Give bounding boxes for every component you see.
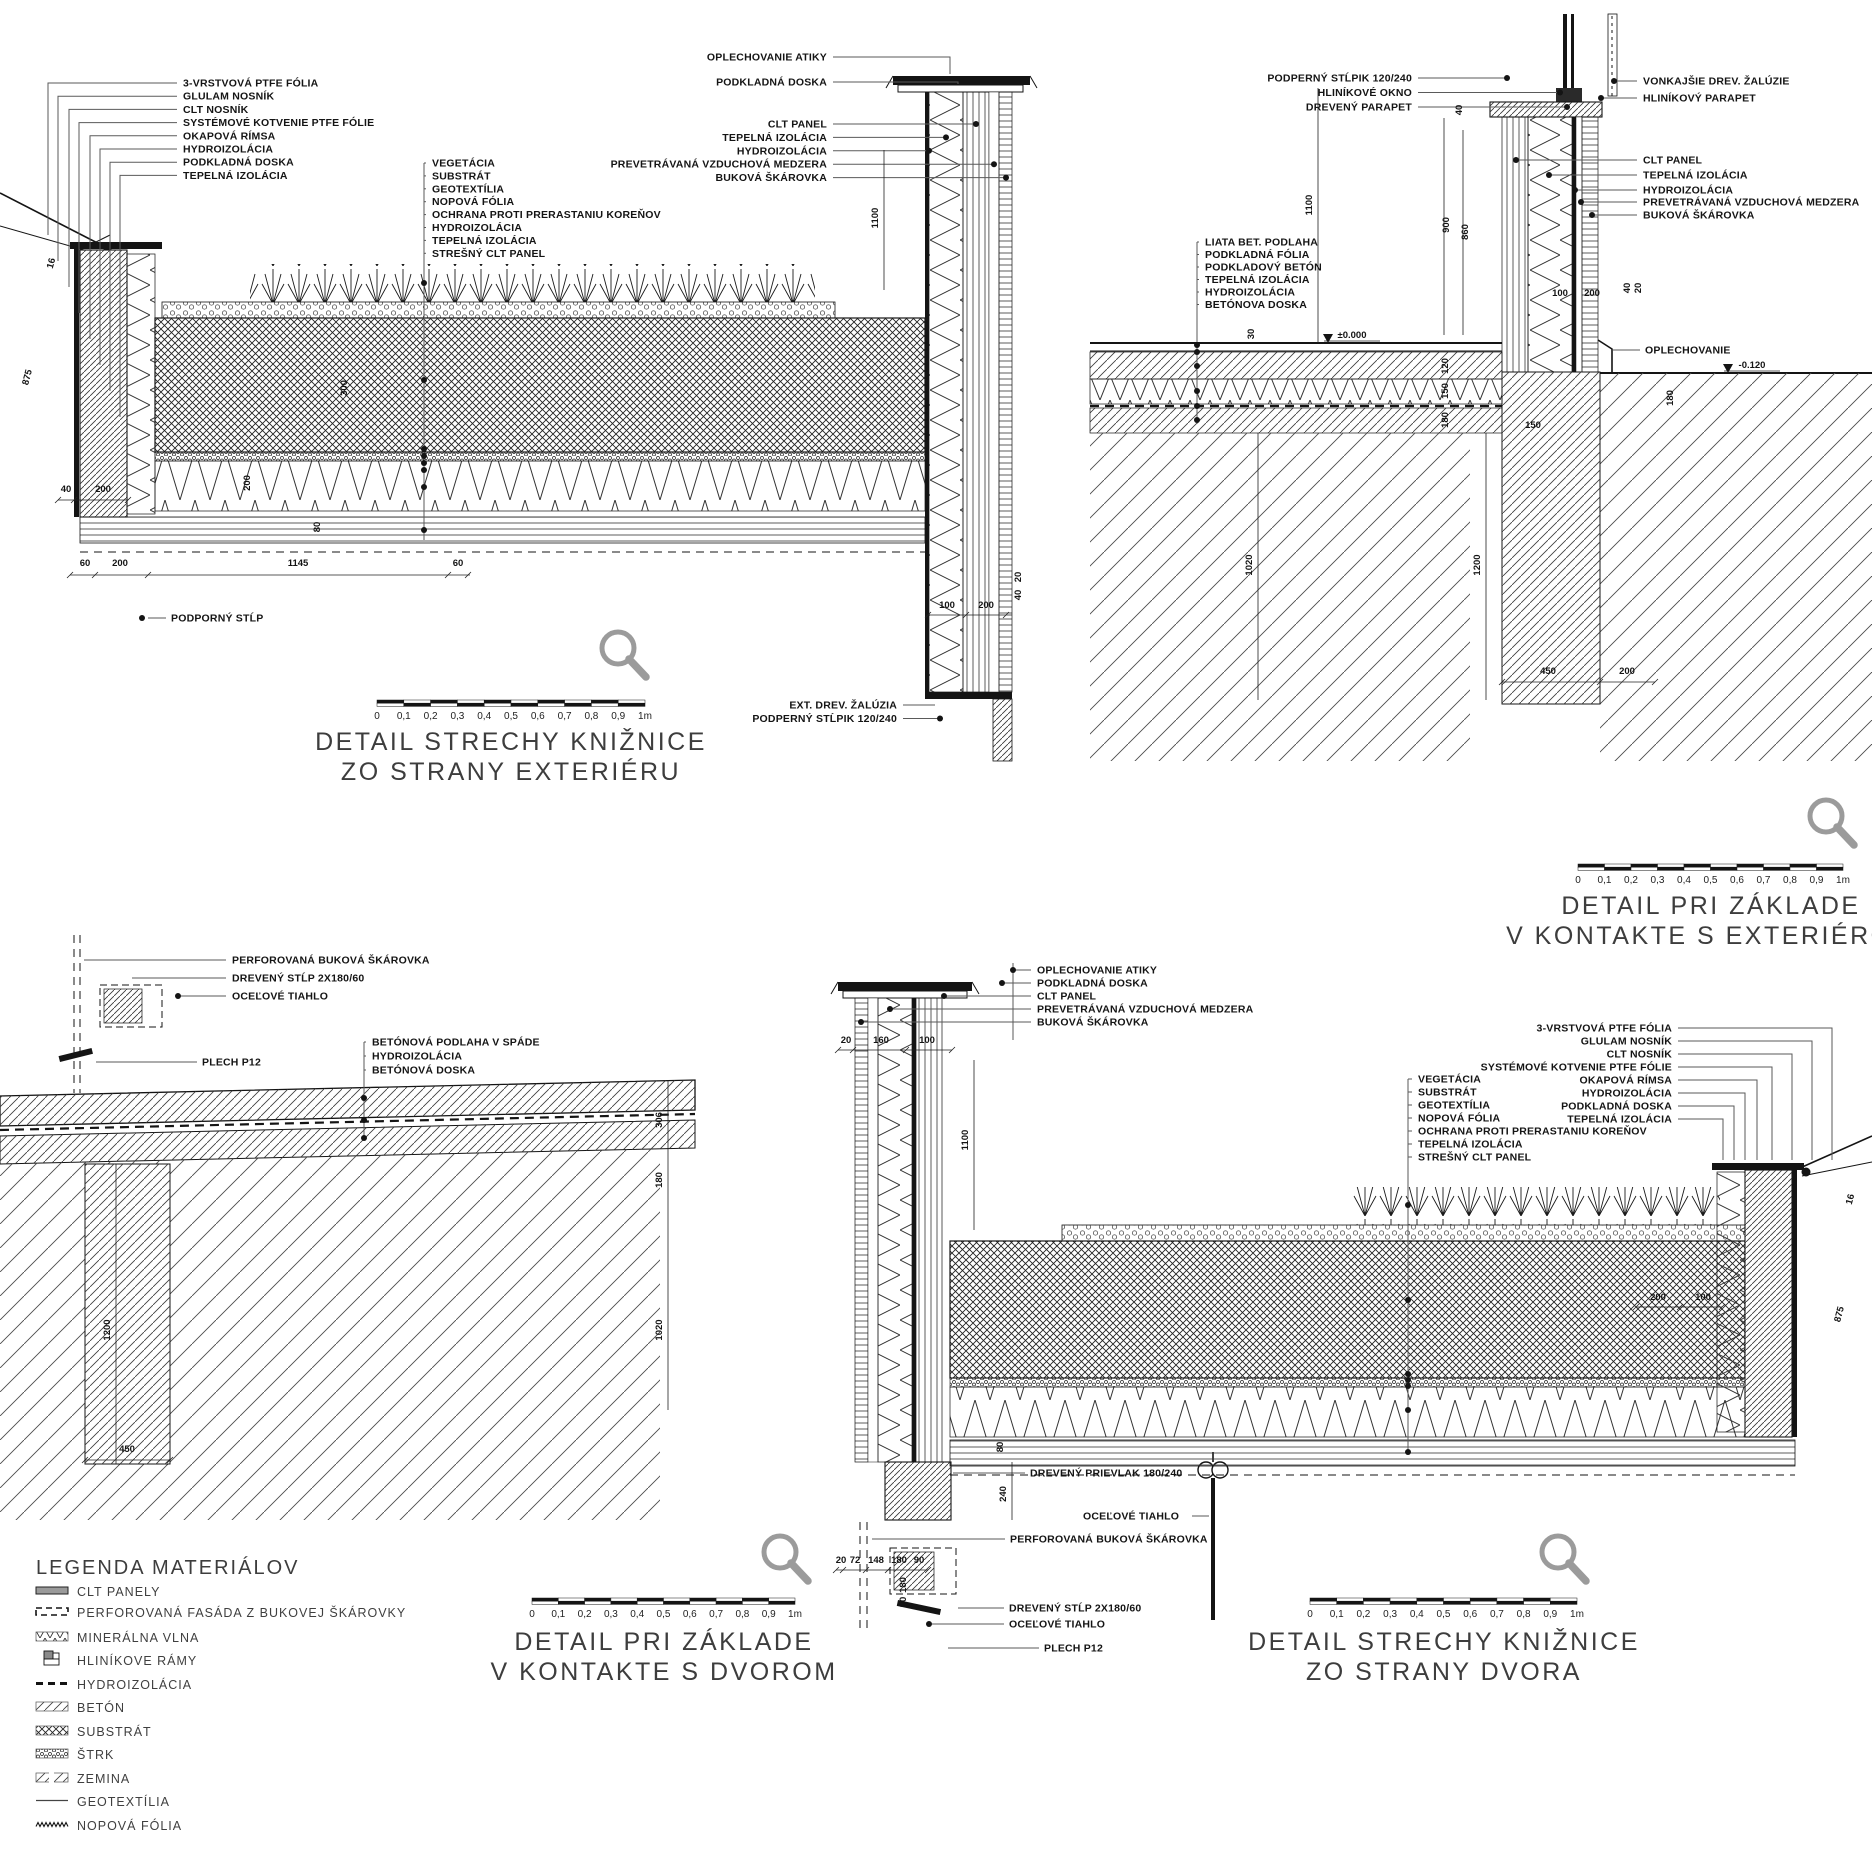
br-middle-label: VEGETÁCIA [1418,1073,1481,1086]
br-tie2-label-dot [926,1621,932,1627]
dim-text: 180 [891,1555,907,1566]
scale-tick-label: 0,6 [1730,875,1744,886]
scale-bar-segment [1658,864,1685,867]
dim-text: 450 [1540,666,1556,677]
scale-tick-label: 1m [1836,875,1850,886]
tl-left-label: HYDROIZOLÁCIA [183,143,273,156]
tl-middle-label: HYDROIZOLÁCIA [432,221,522,234]
dim-text: 60 [453,558,464,569]
scale-tick-label: 0,2 [424,711,438,722]
scale-bar-segment [690,1598,716,1601]
legend-swatch-beton [36,1702,68,1711]
tl-clt-layer [80,517,925,543]
dim-text: 240 [998,1486,1009,1502]
scale-bar-segment [1310,1598,1337,1601]
tl-middle-label: TEPELNÁ IZOLÁCIA [432,234,537,247]
scale-tick-label: 0,2 [1356,1609,1370,1620]
scale-tick-label: 0,6 [1463,1609,1477,1620]
scale-bar-segment [690,1601,716,1604]
scale-bar-segment [742,1598,768,1601]
scale-bar-segment [457,700,484,703]
br-middle-dot [1405,1297,1411,1303]
tr-level-zero: ±0.000 [1338,330,1367,341]
br-wall-hydro [912,998,916,1462]
dim-text: 860 [1460,224,1471,240]
tl-middle-label: NOPOVÁ FÓLIA [432,195,515,208]
tr-flashing-label: OPLECHOVANIE [1645,345,1731,357]
scale-bar-segment [565,700,592,703]
scale-tick-label: 0,6 [683,1609,697,1620]
dim-text: 100 [939,600,955,611]
tr-title-line1: DETAIL PRI ZÁKLADE [1561,891,1860,920]
dim-text: 1100 [1304,195,1315,216]
tl-bottom-right-label: EXT. DREV. ŽALÚZIA [789,699,897,712]
br-top-label: PODKLADNÁ DOSKA [1037,977,1148,990]
scale-bar-segment [1578,867,1605,870]
scale-bar-segment [1711,864,1738,867]
tr-floor-dot [1194,342,1200,348]
legend-item-label: MINERÁLNA VLNA [77,1630,199,1645]
legend-item-label: NOPOVÁ FÓLIA [77,1818,182,1833]
scale-bar-segment [769,1598,795,1601]
br-middle-dot [1405,1377,1411,1383]
tl-middle-dot [421,453,427,459]
tl-middle-dot [421,484,427,490]
legend-swatch-zemina [36,1772,68,1783]
dim-text: 450 [119,1444,135,1455]
tr-floor-label: LIATA BET. PODLAHA [1205,237,1318,249]
tr-wall-clt [1502,117,1528,372]
tr-right-label: CLT PANEL [1643,155,1703,167]
tl-right-label: HYDROIZOLÁCIA [737,144,827,157]
scale-bar-segment [1631,867,1658,870]
tr-air-gap [1576,117,1582,372]
tr-right-dot [1572,187,1578,193]
scale-bar-segment [591,703,618,706]
tl-left-label: TEPELNÁ IZOLÁCIA [183,169,288,182]
scale-bar-segment [484,700,511,703]
scale-tick-label: 1m [1570,1609,1584,1620]
dim-text: 90 [898,1597,909,1608]
scale-tick-label: 0,7 [709,1609,723,1620]
tr-right-dot [1546,172,1552,178]
br-tie-rod [1211,1478,1215,1620]
dim-text: 20 [841,1035,852,1046]
scale-bar-segment [742,1601,768,1604]
scale-bar-segment [1470,1598,1497,1601]
scale-tick-label: 0,8 [1783,875,1797,886]
scale-tick-label: 0,5 [657,1609,671,1620]
br-gravel-layer [1062,1225,1745,1241]
tr-right-label: TEPELNÁ IZOLÁCIA [1643,169,1748,182]
br-clt-layer [950,1440,1795,1466]
dim-text: 1145 [288,558,309,569]
tr-right-dot [1598,95,1604,101]
scale-tick-label: 0,7 [1757,875,1771,886]
scale-bar-segment [664,1598,690,1601]
bl-title-line1: DETAIL PRI ZÁKLADE [514,1627,813,1656]
scale-bar-segment [558,1601,584,1604]
tr-floor-dot [1194,403,1200,409]
bl-post-label: PERFOROVANÁ BUKOVÁ ŠKÁROVKA [232,954,430,967]
scale-tick-label: 0,1 [1330,1609,1344,1620]
br-glulam-anchor-dot [1802,1168,1811,1177]
bl-floor-label: BETÓNOVÁ DOSKA [372,1064,475,1077]
scale-bar-segment [1817,867,1844,870]
tr-left-top-label: HLINÍKOVÉ OKNO [1318,86,1412,99]
scale-bar-segment [585,1601,611,1604]
dim-text: 306 [654,1112,665,1128]
tl-left-label: OKAPOVÁ RÍMSA [183,129,276,142]
br-post-label: DREVENÝ STĹP 2X180/60 [1009,1602,1141,1615]
scale-tick-label: 0,4 [477,711,491,722]
tr-right-dot [1611,78,1617,84]
scale-bar-segment [591,700,618,703]
dim-text: 1100 [960,1130,971,1151]
tl-right-label: PREVETRÁVANÁ VZDUCHOVÁ MEDZERA [611,158,828,171]
br-middle-dot [1405,1371,1411,1377]
scale-tick-label: 0,8 [735,1609,749,1620]
br-insulation-layer [950,1387,1745,1437]
bl-foundation-hatch [85,1164,170,1464]
tl-left-label: 3-VRSTVOVÁ PTFE FÓLIA [183,77,319,90]
scale-tick-label: 0,8 [584,711,598,722]
tr-window-glazing [1563,14,1567,98]
tr-left-top-dot [1504,75,1510,81]
scale-tick-label: 0,3 [1383,1609,1397,1620]
scale-bar-segment [1417,1601,1444,1604]
bl-post-label: OCEĽOVÉ TIAHLO [232,990,328,1003]
tl-middle-dot [421,467,427,473]
dim-text: 60 [80,558,91,569]
scale-tick-label: 0,3 [450,711,464,722]
tr-wall-hydro [1572,117,1576,372]
br-middle-label: GEOTEXTÍLIA [1418,1099,1490,1112]
br-tie-label: OCEĽOVÉ TIAHLO [1083,1510,1179,1523]
scale-bar-segment [1497,1598,1524,1601]
tr-floor-label: PODKLADOVÝ BETÓN [1205,261,1322,274]
tr-right-dot [1589,212,1595,218]
br-right-label: HYDROIZOLÁCIA [1582,1087,1672,1100]
br-top-label: OPLECHOVANIE ATIKY [1037,965,1157,977]
tl-bottom-right-label: PODPERNÝ STĹPIK 120/240 [752,712,897,725]
br-base-board [843,991,967,998]
scale-bar-segment [1790,864,1817,867]
br-girder-label: DREVENÝ PRIEVLAK 180/240 [1030,1467,1182,1480]
br-middle-label: NOPOVÁ FÓLIA [1418,1112,1501,1125]
br-right-label: TEPELNÁ IZOLÁCIA [1567,1113,1672,1126]
dim-text: 1100 [870,208,881,229]
tl-support-label: PODPORNÝ STĹP [171,612,263,625]
dim-text: 1200 [102,1319,113,1340]
scale-tick-label: 0 [1307,1609,1313,1620]
dim-text: 200 [95,484,111,495]
scale-bar-segment [532,1601,558,1604]
scale-bar-segment [538,700,565,703]
dim-text: 40 [1013,590,1024,601]
tr-wall-insulation [1528,117,1572,372]
scale-bar-segment [484,703,511,706]
scale-bar-segment [769,1601,795,1604]
dim-text: 300 [339,380,350,396]
legend-item-label: PERFOROVANÁ FASÁDA Z BUKOVEJ ŠKÁROVKY [77,1605,406,1620]
br-cladding-label: PERFOROVANÁ BUKOVÁ ŠKÁROVKA [1010,1533,1208,1546]
scale-tick-label: 0,3 [1651,875,1665,886]
scale-bar-segment [664,1601,690,1604]
scale-tick-label: 0,1 [1598,875,1612,886]
br-right-label: 3-VRSTVOVÁ PTFE FÓLIA [1537,1022,1673,1035]
br-top-label: CLT PANEL [1037,991,1097,1003]
tr-floor-label: PODKLADNÁ FÓLIA [1205,248,1310,261]
bl-post-label: DREVENÝ STĹP 2X180/60 [232,972,364,985]
br-beech-cladding [855,998,868,1462]
dim-text: 180 [1665,390,1676,406]
tr-right-label: HYDROIZOLÁCIA [1643,184,1733,197]
scale-bar-segment [716,1598,742,1601]
tl-right-label: CLT PANEL [768,119,828,131]
br-middle-dot [1405,1202,1411,1208]
scale-bar-segment [565,703,592,706]
scale-tick-label: 0,9 [1810,875,1824,886]
tl-middle-label: STREŠNÝ CLT PANEL [432,247,546,260]
tl-parapet-cap [70,242,162,249]
tr-left-top-dot [1564,104,1570,110]
tl-bottom-right-dot [937,716,943,722]
tl-hydro-strip [74,249,79,517]
tl-right-dot [943,134,949,140]
scale-bar-segment [716,1601,742,1604]
scale-tick-label: 1m [638,711,652,722]
dim-text: 150 [1525,420,1541,431]
scale-tick-label: 0 [1575,875,1581,886]
scale-tick-label: 0,5 [1437,1609,1451,1620]
br-middle-label: STREŠNÝ CLT PANEL [1418,1151,1532,1164]
br-top-dot [887,1006,893,1012]
dim-text: 148 [868,1555,884,1566]
tl-support-post [993,699,1012,761]
dim-text: 90 [914,1555,925,1566]
scale-bar-segment [532,1598,558,1601]
tr-right-label: VONKAJŠIE DREV. ŽALÚZIE [1643,75,1790,88]
scale-bar-segment [1444,1601,1471,1604]
br-middle-dot [1405,1449,1411,1455]
scale-bar-segment [1497,1601,1524,1604]
scale-bar-segment [1737,867,1764,870]
scale-tick-label: 0,1 [397,711,411,722]
br-tie2-label: OCEĽOVÉ TIAHLO [1009,1618,1105,1631]
tl-left-label: CLT NOSNÍK [183,103,249,116]
bl-post-dot [175,993,181,999]
br-middle-dot [1405,1383,1411,1389]
scale-bar-segment [377,703,404,706]
tl-title-line2: ZO STRANY EXTERIÉRU [341,757,681,786]
legend-swatch-alu-frames [44,1651,59,1665]
scale-tick-label: 0,4 [1410,1609,1424,1620]
tl-gravel-layer [162,302,835,318]
bl-floor-label: HYDROIZOLÁCIA [372,1050,462,1063]
scale-bar-segment [1337,1601,1364,1604]
tl-substrate-layer [155,318,925,452]
scale-bar-segment [431,700,458,703]
tl-right-dot [1003,175,1009,181]
br-plate-label: PLECH P12 [1044,1643,1103,1655]
tl-middle-label: OCHRANA PROTI PRERASTANIU KOREŇOV [432,208,661,221]
tl-middle-dot [421,446,427,452]
tr-right-dot [1578,199,1584,205]
tl-blind-box [925,692,1012,699]
scale-bar-segment [1390,1598,1417,1601]
scale-bar-segment [637,1598,663,1601]
scale-bar-segment [1444,1598,1471,1601]
legend-item-label: HYDROIZOLÁCIA [77,1677,192,1692]
tl-support-label-dot [139,615,145,621]
tr-window-glazing2 [1571,14,1574,98]
br-right-label: CLT NOSNÍK [1607,1048,1673,1061]
legend-item-label: ŠTRK [77,1747,114,1762]
legend-item-label: CLT PANELY [77,1585,160,1599]
dim-text: 200 [242,475,253,491]
tl-right-label: BUKOVÁ ŠKÁROVKA [715,171,827,184]
scale-bar-segment [538,703,565,706]
tl-left-label: SYSTÉMOVÉ KOTVENIE PTFE FÓLIE [183,116,374,129]
scale-bar-segment [618,703,645,706]
tl-drainage-layer [155,452,925,461]
dim-text: 120 [1440,358,1451,374]
scale-bar-segment [1631,864,1658,867]
tr-foundation-hatch [1502,372,1600,704]
scale-tick-label: 0,9 [611,711,625,722]
tr-left-top-dot [1557,90,1563,96]
dim-text: 20 [1633,283,1644,294]
tl-middle-dot [421,460,427,466]
br-right-label: GLULAM NOSNÍK [1581,1035,1672,1048]
tl-right-top-label: OPLECHOVANIE ATIKY [707,52,827,64]
scale-bar-segment [1658,867,1685,870]
scale-tick-label: 0,8 [1517,1609,1531,1620]
br-middle-dot [1405,1407,1411,1413]
bl-plate-label: PLECH P12 [202,1057,261,1069]
dim-text: 1020 [1244,554,1255,575]
tl-beech-cladding [999,92,1012,692]
br-top-dot [999,980,1005,986]
dim-text: 180 [654,1172,665,1188]
br-parapet-cap [1712,1163,1804,1170]
scale-bar-segment [1550,1601,1577,1604]
scale-bar-segment [1737,864,1764,867]
scale-bar-segment [1310,1601,1337,1604]
tl-base-board [898,85,1023,92]
dim-text: 900 [1441,217,1452,233]
legend-item-label: BETÓN [77,1700,125,1715]
dim-text: 30 [1246,329,1257,340]
br-right-label: OKAPOVÁ RÍMSA [1580,1074,1673,1087]
tr-floor-label: BETÓNOVA DOSKA [1205,298,1307,311]
tr-right-label: HLINÍKOVÝ PARAPET [1643,92,1756,105]
scale-bar-segment [1578,864,1605,867]
scale-tick-label: 0 [529,1609,535,1620]
br-right-label: PODKLADNÁ DOSKA [1561,1100,1672,1113]
scale-bar-segment [1417,1598,1444,1601]
bl-floor-dot [361,1117,367,1123]
br-parapet-column-hatch [1745,1170,1792,1437]
scale-tick-label: 1m [788,1609,802,1620]
scale-bar-segment [611,1601,637,1604]
scale-tick-label: 0,6 [531,711,545,722]
tr-right-dot [1513,157,1519,163]
tl-middle-dot [421,280,427,286]
dim-text: 150 [1440,383,1451,399]
tl-middle-label: GEOTEXTÍLIA [432,182,504,195]
tr-level-minus: -0.120 [1739,360,1766,371]
scale-bar-segment [585,1598,611,1601]
scale-bar-segment [1524,1601,1551,1604]
scale-bar-segment [377,700,404,703]
scale-tick-label: 0,4 [1677,875,1691,886]
tr-floor-dot [1194,388,1200,394]
tl-middle-label: SUBSTRÁT [432,169,491,182]
legend-swatch-substrat [36,1726,68,1735]
scale-tick-label: 0 [374,711,380,722]
dim-text: 180 [898,1577,909,1593]
scale-bar-segment [1684,867,1711,870]
scale-bar-segment [618,700,645,703]
tl-middle-dot [421,527,427,533]
bl-floor-dot [361,1095,367,1101]
tr-right-label: BUKOVÁ ŠKÁROVKA [1643,209,1755,222]
br-wall-insulation [878,998,912,1462]
scale-bar-segment [1605,864,1632,867]
scale-tick-label: 0,5 [1704,875,1718,886]
tr-floor-label: TEPELNÁ IZOLÁCIA [1205,273,1310,286]
scale-tick-label: 0,5 [504,711,518,722]
bl-floor-label: BETÓNOVÁ PODLAHA V SPÁDE [372,1036,540,1049]
br-top-label: PREVETRÁVANÁ VZDUCHOVÁ MEDZERA [1037,1003,1254,1016]
dim-text: 40 [1622,283,1633,294]
scale-bar-segment [611,1598,637,1601]
tl-insulation-layer [155,461,925,511]
scale-bar-segment [1390,1601,1417,1604]
br-top-dot [1010,967,1016,973]
tl-right-dot [926,148,932,154]
scale-bar-segment [1337,1598,1364,1601]
tr-right-label: PREVETRÁVANÁ VZDUCHOVÁ MEDZERA [1643,196,1860,209]
dim-text: 40 [1454,105,1465,116]
tr-floor-dot [1194,349,1200,355]
dim-text: 160 [873,1035,889,1046]
tr-left-top-label: DREVENÝ PARAPET [1306,101,1412,114]
br-middle-label: TEPELNÁ IZOLÁCIA [1418,1138,1523,1151]
br-top-label: BUKOVÁ ŠKÁROVKA [1037,1016,1149,1029]
scale-bar-segment [404,703,431,706]
scale-bar-segment [1684,864,1711,867]
scale-bar-segment [1764,864,1791,867]
tl-attic-flashing [893,76,1030,85]
dim-text: 180 [1440,412,1451,428]
legend-item-label: SUBSTRÁT [77,1724,152,1739]
tr-title-line2: V KONTAKTE S EXTERIÉROM [1506,921,1872,950]
legend-item-label: ZEMINA [77,1772,130,1786]
scale-tick-label: 0,3 [604,1609,618,1620]
scale-bar-segment [1764,867,1791,870]
legend-item-perforated: PERFOROVANÁ FASÁDA Z BUKOVEJ ŠKÁROVKY [36,1605,406,1620]
scale-bar-segment [558,1598,584,1601]
scale-bar-segment [1524,1598,1551,1601]
dim-text: 1020 [654,1319,665,1340]
dim-text: 100 [1552,288,1568,299]
bl-wood-post [104,989,142,1023]
dim-text: 100 [919,1035,935,1046]
tl-right-top-label: PODKLADNÁ DOSKA [716,76,827,89]
